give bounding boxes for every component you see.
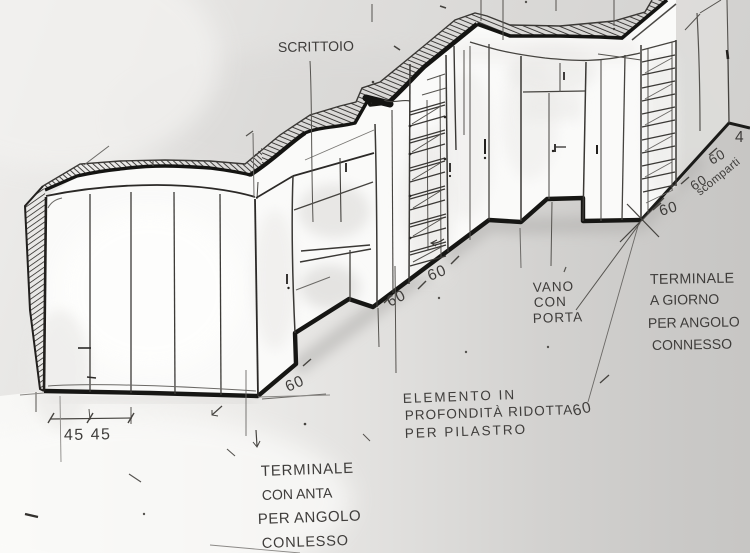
svg-text:PORTA: PORTA xyxy=(533,309,584,326)
svg-text:CON ANTA: CON ANTA xyxy=(262,485,334,503)
svg-text:CONLESSO: CONLESSO xyxy=(262,533,349,552)
svg-text:CON: CON xyxy=(534,294,568,310)
svg-text:4: 4 xyxy=(735,129,744,146)
svg-text:VANO: VANO xyxy=(533,279,575,295)
svg-text:PER ANGOLO: PER ANGOLO xyxy=(648,313,740,331)
svg-text:CONNESSO: CONNESSO xyxy=(652,336,733,353)
svg-text:A GIORNO: A GIORNO xyxy=(650,291,720,308)
svg-text:SCRITTOIO: SCRITTOIO xyxy=(278,38,354,55)
svg-text:PER ANGOLO: PER ANGOLO xyxy=(258,507,362,528)
svg-text:TERMINALE: TERMINALE xyxy=(650,271,735,288)
svg-text:45 45: 45 45 xyxy=(64,426,112,444)
svg-text:TERMINALE: TERMINALE xyxy=(261,460,355,480)
